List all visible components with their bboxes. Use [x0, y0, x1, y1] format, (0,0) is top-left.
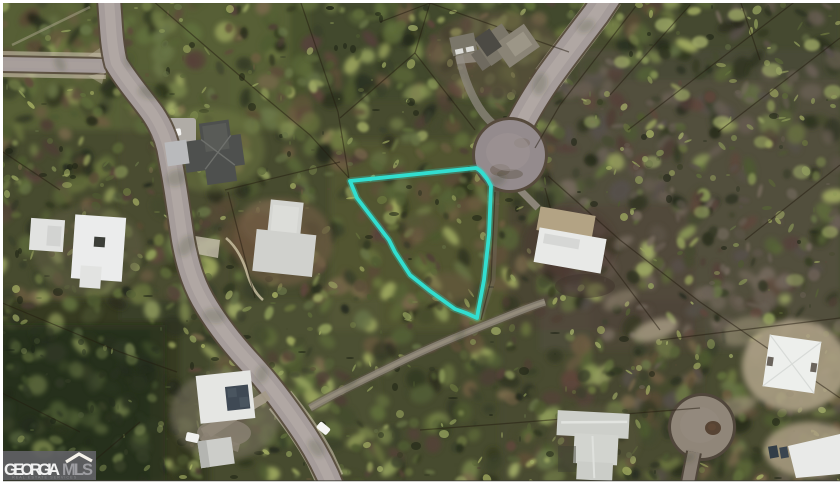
svg-text:REAL ESTATE SERVICES: REAL ESTATE SERVICES: [12, 476, 77, 480]
